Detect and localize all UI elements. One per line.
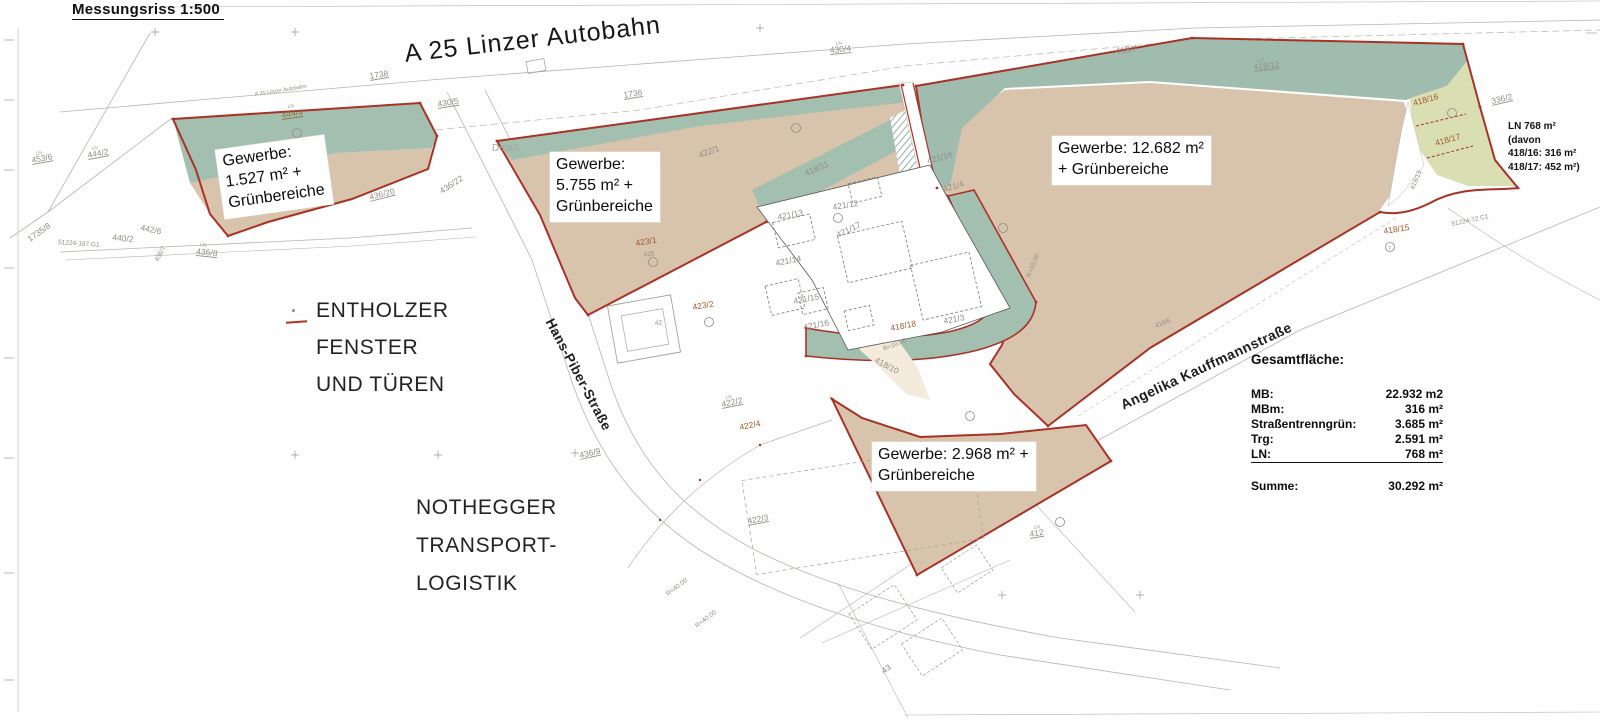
gewerbe-2-line-1: Gewerbe: — [556, 154, 653, 175]
summary-value: 3.685 m² — [1375, 417, 1443, 432]
ln-note-line-1: LN 768 m² — [1508, 120, 1580, 134]
parcel-label-422-4: 422/4 — [738, 418, 761, 432]
parcel-label-422-3: 422/3 — [746, 512, 769, 526]
gewerbe-2-line-2: 5.755 m² + — [556, 175, 653, 196]
entholzer-line-1: ENTHOLZER — [316, 292, 449, 329]
parcel-label-1738: 1738 — [369, 68, 390, 81]
detail-label: Detail: — [492, 143, 520, 154]
parcel-label-421-14: 421/14 — [774, 253, 802, 268]
summary-heading: Gesamtfläche: — [1251, 352, 1443, 367]
parcel-label-1735-8: 1735/8 — [25, 220, 52, 243]
gewerbe-3-line-2: + Grünbereiche — [1058, 159, 1204, 180]
entholzer-line-3: UND TÜREN — [316, 366, 449, 403]
summary-row-trg: Trg: 2.591 m² — [1251, 432, 1443, 447]
summary-value: 316 m² — [1375, 402, 1443, 417]
gewerbe-2-line-3: Grünbereiche — [556, 196, 653, 217]
summary-total-row: Summe: 30.292 m² — [1251, 479, 1443, 493]
ln-mark: LN — [200, 242, 207, 249]
summary-label: MBm: — [1251, 402, 1375, 417]
gewerbe-label-5755: Gewerbe: 5.755 m² + Grünbereiche — [550, 152, 660, 222]
summary-total-label: Summe: — [1251, 479, 1298, 493]
parcel-label-440-2: 440/2 — [112, 232, 134, 244]
summary-row-mb: MB: 22.932 m2 — [1251, 387, 1443, 402]
ln-area-note: LN 768 m² (davon 418/16: 316 m² 418/17: … — [1508, 120, 1580, 174]
summary-label: Trg: — [1251, 432, 1375, 447]
ln-mark: LN — [287, 103, 294, 110]
autobahn-small-label: A 25 Linzer Autobahn — [254, 84, 307, 98]
ln-mark: LN — [91, 145, 99, 152]
parcel-label-436-22: 436/22 — [438, 173, 465, 196]
parcel-label-442-6: 442/6 — [140, 222, 163, 236]
survey-point-7: 7 — [1388, 246, 1391, 252]
gewerbe-label-2968: Gewerbe: 2.968 m² + Grünbereiche — [872, 442, 1036, 491]
area-summary-table: Gesamtfläche: MB: 22.932 m2 MBm: 316 m² … — [1251, 352, 1443, 493]
parcel-label-430-5: 430/5 — [437, 96, 460, 109]
nothegger-line-3: LOGISTIK — [416, 565, 557, 603]
radius-label-1: R=40.00 — [665, 577, 689, 598]
gewerbe-4-line-1: Gewerbe: 2.968 m² + — [878, 444, 1029, 465]
summary-total-value: 30.292 m² — [1388, 479, 1443, 493]
parcel-label-418-15: 418/15 — [1383, 222, 1411, 236]
parcel-label-43: 43 — [879, 662, 893, 676]
survey-plan-page: 444/4 444/2 453/6 1735/8 51224-187 G1 44… — [0, 0, 1600, 720]
parcel-label-421-15: 421/15 — [792, 291, 820, 306]
summary-label: MB: — [1251, 387, 1375, 402]
summary-rows: MB: 22.932 m2 MBm: 316 m² Straßentrenngr… — [1251, 387, 1443, 463]
summary-label: Straßentrenngrün: — [1251, 417, 1375, 432]
ln-note-line-3: 418/16: 316 m² — [1508, 147, 1580, 161]
radius-label-2: R=40.00 — [694, 609, 718, 630]
parcel-label-444-2: 444/2 — [87, 146, 110, 160]
ln-mark: LN — [1033, 524, 1041, 531]
summary-label: LN: — [1251, 447, 1375, 463]
parcel-label-436-9: 436/9 — [578, 446, 601, 460]
ln-mark: LN — [836, 40, 843, 47]
gewerbe-label-12682: Gewerbe: 12.682 m² + Grünbereiche — [1052, 136, 1211, 185]
company-label-nothegger: NOTHEGGER TRANSPORT- LOGISTIK — [416, 489, 557, 603]
summary-value: 2.591 m² — [1375, 432, 1443, 447]
summary-row-mbm: MBm: 316 m² — [1251, 402, 1443, 417]
company-label-entholzer: ENTHOLZER FENSTER UND TÜREN — [316, 292, 449, 403]
page-title: Messungsriss 1:500 — [72, 1, 224, 20]
gewerbe-4-line-2: Grünbereiche — [878, 465, 1029, 486]
summary-row-strassentrenngruen: Straßentrenngrün: 3.685 m² — [1251, 417, 1443, 432]
ln-mark: LN — [35, 150, 43, 157]
building-label-42: 42 — [655, 319, 663, 327]
ln-note-line-2: (davon — [1508, 134, 1580, 148]
parcel-label-51224-72: 51224-72 C1 — [1451, 213, 1490, 228]
ln-note-line-4: 418/17: 452 m²) — [1508, 161, 1580, 175]
entholzer-line-2: FENSTER — [316, 329, 449, 366]
summary-value: 768 m² — [1375, 447, 1443, 463]
nothegger-line-2: TRANSPORT- — [416, 527, 557, 565]
parcel-label-51224-187: 51224-187 G1 — [58, 239, 100, 249]
parcel-label-336-2: 336/2 — [1490, 91, 1513, 106]
parcel-label-1736: 1736 — [623, 87, 644, 100]
parcel-label-423-2: 423/2 — [692, 299, 715, 312]
summary-value: 22.932 m2 — [1375, 387, 1443, 402]
reference-dot — [292, 309, 295, 312]
parcel-label-453-6: 453/6 — [31, 151, 54, 165]
summary-row-ln: LN: 768 m² — [1251, 447, 1443, 463]
gewerbe-3-line-1: Gewerbe: 12.682 m² — [1058, 138, 1204, 159]
nothegger-line-1: NOTHEGGER — [416, 489, 557, 527]
parcel-label-422-2: 422/2 — [720, 395, 743, 409]
ln-mark: LN — [725, 394, 733, 401]
